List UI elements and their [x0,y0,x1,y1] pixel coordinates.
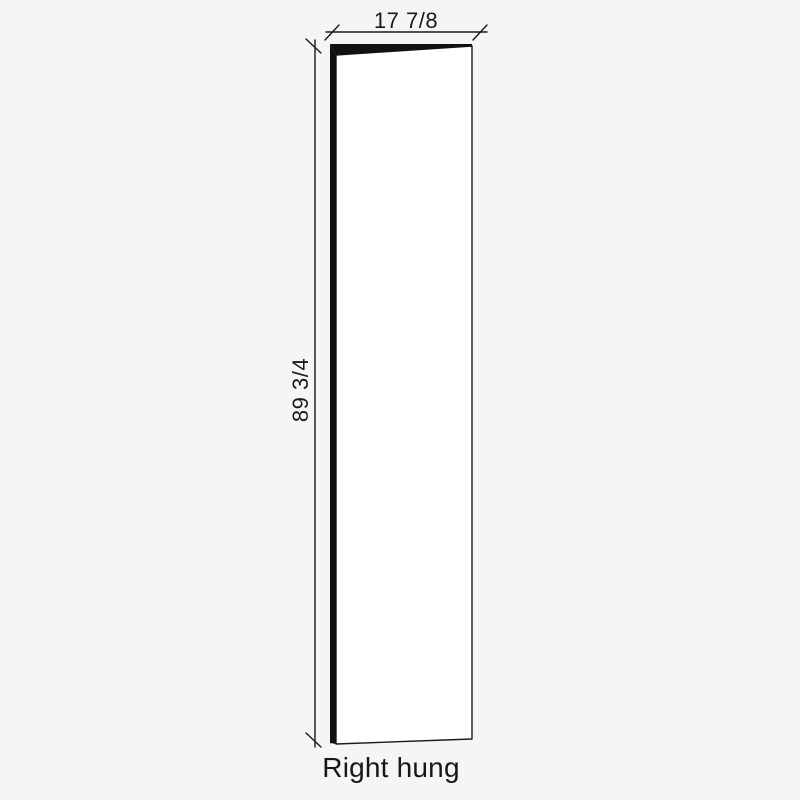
door-illustration [0,0,800,800]
door-face [336,46,472,744]
height-dimension-label: 89 3/4 [290,358,312,422]
height-tick-bottom [306,733,321,747]
height-tick-top [306,39,321,53]
door-edge-left [330,44,336,744]
width-dimension-label: 17 7/8 [374,10,438,32]
door-diagram-canvas: 17 7/8 89 3/4 Right hung [0,0,800,800]
door-caption: Right hung [322,751,459,785]
